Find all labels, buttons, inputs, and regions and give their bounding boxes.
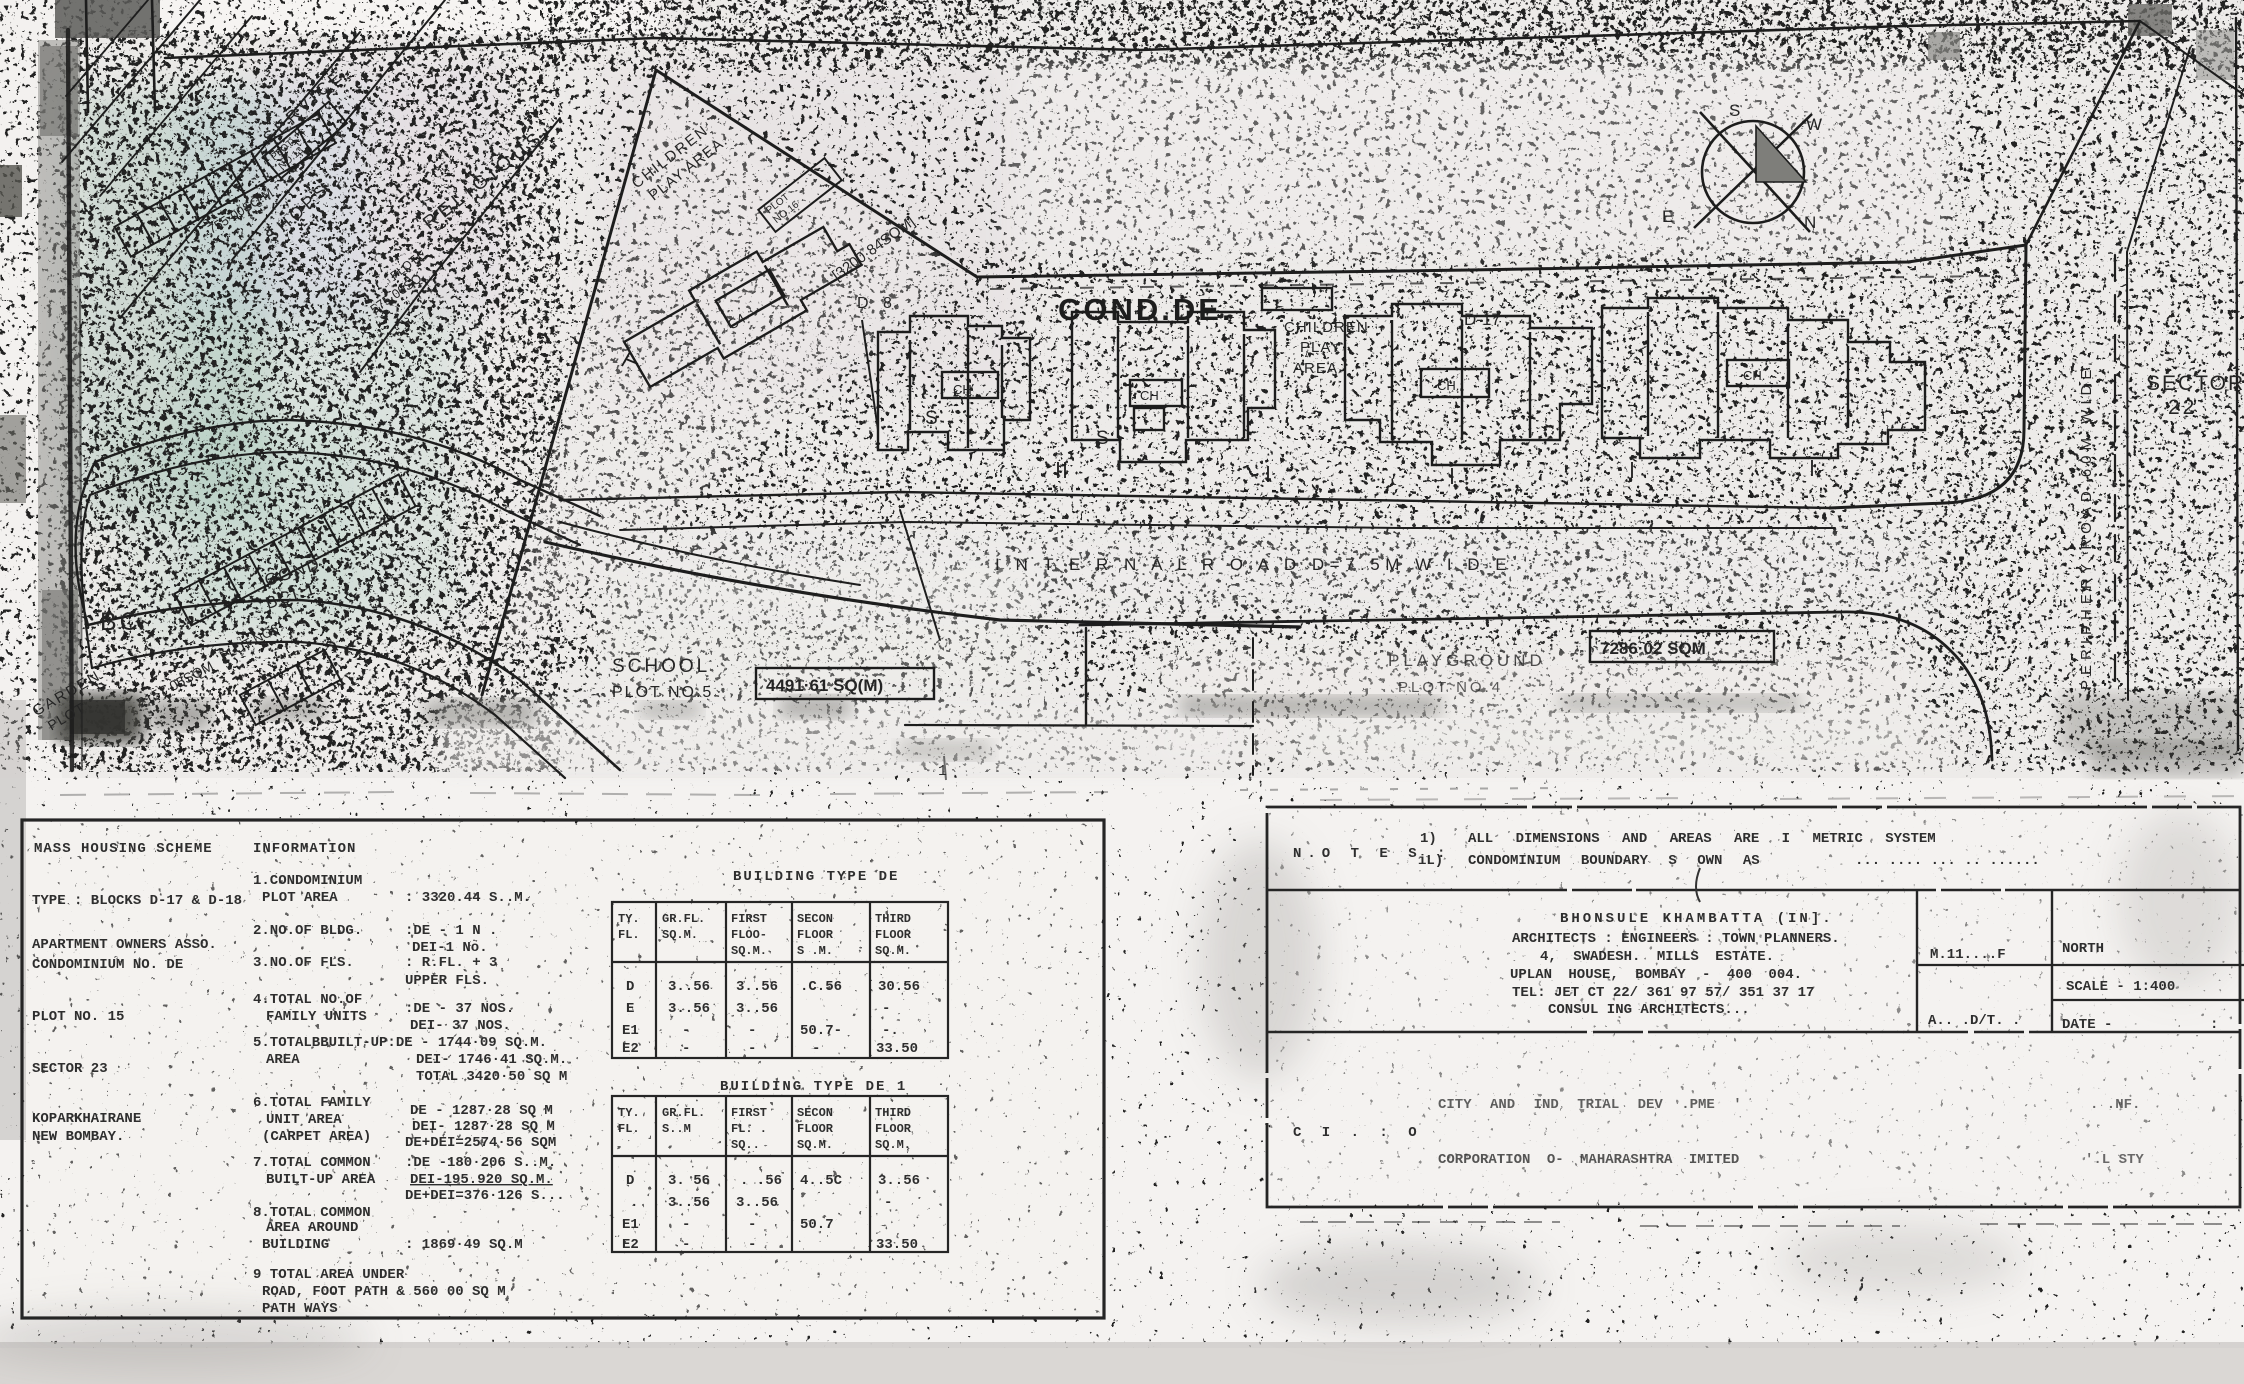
svg-text:NORTH: NORTH <box>2062 941 2104 957</box>
svg-text:PLOT NO.4: PLOT NO.4 <box>1398 679 1503 696</box>
svg-text:BUILDING TYPE DE: BUILDING TYPE DE <box>733 869 899 885</box>
svg-text:SCALE - 1:400: SCALE - 1:400 <box>2066 979 2175 995</box>
svg-text:SECON: SECON <box>797 912 833 926</box>
svg-text:FLOO-: FLOO- <box>731 928 767 942</box>
svg-text:A.. .D/T. .: A.. .D/T. . <box>1928 1013 2020 1029</box>
svg-text:BHONSULE KHAMBATTA (IN].: BHONSULE KHAMBATTA (IN]. <box>1560 911 1834 927</box>
svg-text:8.TOTAL COMMON: 8.TOTAL COMMON <box>253 1205 371 1221</box>
svg-text:-: - <box>682 1237 690 1253</box>
svg-text:30.56: 30.56 <box>878 979 920 995</box>
svg-text:-: - <box>884 1195 892 1211</box>
svg-text:THIRD: THIRD <box>875 912 911 926</box>
svg-text:FLOOR: FLOOR <box>875 928 912 942</box>
svg-text:3..56: 3..56 <box>668 1195 710 1211</box>
svg-text:TOTAL 3420·50 SQ M: TOTAL 3420·50 SQ M <box>416 1069 567 1085</box>
svg-text:PLOT NO. 15: PLOT NO. 15 <box>32 1009 124 1025</box>
svg-text:CONDOMINIUM BOUNDARY S OWN: CONDOMINIUM BOUNDARY S OWN AS <box>1468 853 1760 869</box>
svg-text:ROAD, FOOT PATH & 560 00 SQ M: ROAD, FOOT PATH & 560 00 SQ M <box>262 1284 506 1300</box>
svg-text:50.7: 50.7 <box>800 1217 834 1233</box>
svg-text:DE - 1287·28 SQ M: DE - 1287·28 SQ M <box>410 1103 553 1119</box>
svg-text:SCHOOL: SCHOOL <box>612 656 710 677</box>
svg-text:C I . : O: C I . : O <box>1293 1125 1423 1141</box>
svg-text:TY.: TY. <box>618 1106 640 1120</box>
svg-text:CH: CH <box>1140 388 1159 403</box>
svg-text:AREA: AREA <box>1293 360 1338 377</box>
svg-text:DEI- 1746·41 SQ.M.: DEI- 1746·41 SQ.M. <box>416 1052 567 1068</box>
svg-text:SECON: SECON <box>797 1106 833 1120</box>
svg-text:S: S <box>1096 428 1109 449</box>
svg-text:7286·02 SQM: 7286·02 SQM <box>1600 639 1706 658</box>
svg-text:E2: E2 <box>622 1237 639 1253</box>
svg-text:CITY AND IND TRIAL DEV: CITY AND IND TRIAL DEV .PME ' <box>1438 1097 1742 1113</box>
svg-text:1): 1) <box>1420 831 1437 847</box>
svg-text:DEI- 1287·28 SQ M: DEI- 1287·28 SQ M <box>412 1119 555 1135</box>
svg-text:THIRD: THIRD <box>875 1106 911 1120</box>
svg-text:E1: E1 <box>622 1023 639 1039</box>
svg-text:DEI-195.920 SQ.M.: DEI-195.920 SQ.M. <box>410 1172 553 1188</box>
svg-text:W: W <box>1806 115 1822 134</box>
svg-text::DE - 1 N .: :DE - 1 N . <box>405 923 497 939</box>
svg-text:50.7-: 50.7- <box>800 1023 842 1039</box>
svg-text:ALL DIMENSIONS AND AREAS: ALL DIMENSIONS AND AREAS ARE I METRIC SY… <box>1468 831 1936 847</box>
svg-text:-: - <box>812 1041 820 1057</box>
svg-text:: 1869·49 SQ.M: : 1869·49 SQ.M <box>405 1237 523 1253</box>
svg-text:. .56: . .56 <box>740 1173 782 1189</box>
svg-text:M.11....F: M.11....F <box>1930 947 2006 963</box>
svg-text:3..56: 3..56 <box>878 1173 920 1189</box>
svg-text:-: - <box>748 1217 756 1233</box>
svg-text:3..56: 3..56 <box>736 1001 778 1017</box>
svg-text:4, SWADESH. MILLS ESTATE.: 4, SWADESH. MILLS ESTATE. <box>1540 949 1774 965</box>
svg-text:DATE -: DATE - <box>2062 1017 2112 1033</box>
svg-text:E: E <box>1662 207 1673 226</box>
svg-text:3.NO.OF FLS.: 3.NO.OF FLS. <box>253 955 354 971</box>
svg-text:KOPARKHAIRANE: KOPARKHAIRANE <box>32 1111 141 1127</box>
svg-text:N: N <box>1804 213 1816 232</box>
svg-text:CORPORATION O- MAHARASHTRA: CORPORATION O- MAHARASHTRA IMITED <box>1438 1152 1739 1168</box>
svg-text:GR.FL.: GR.FL. <box>662 1106 705 1120</box>
svg-text:NEW BOMBAY.: NEW BOMBAY. <box>32 1129 124 1145</box>
svg-text:E1: E1 <box>622 1217 639 1233</box>
svg-text:iL): iL) <box>1418 853 1443 869</box>
svg-text:TYPE : BLOCKS D-17 & D-18: TYPE : BLOCKS D-17 & D-18 <box>32 893 242 909</box>
svg-text:FLOOR: FLOOR <box>797 1122 834 1136</box>
svg-text:D 8: D 8 <box>857 295 897 312</box>
svg-text:BC: BC <box>100 608 141 636</box>
svg-text:D: D <box>626 979 634 995</box>
svg-text:. .NF.: . .NF. <box>2090 1097 2140 1113</box>
svg-text:6.TOTAL FAMILY: 6.TOTAL FAMILY <box>253 1095 371 1111</box>
svg-text:SECTOR: SECTOR <box>2146 372 2244 395</box>
svg-text:5.TOTALBBUILT-UP:DE - 1744·09: 5.TOTALBBUILT-UP:DE - 1744·09 SQ.M. <box>253 1035 547 1051</box>
svg-text:22: 22 <box>2168 396 2197 419</box>
svg-text:TEL: JET CT 22/ 361 97 57/ 351: TEL: JET CT 22/ 361 97 57/ 351 37 17 <box>1512 985 1814 1001</box>
svg-text:3..56: 3..56 <box>736 1195 778 1211</box>
svg-text:-: - <box>748 1023 756 1039</box>
svg-text:: 3320.44 S..M.: : 3320.44 S..M. <box>405 890 531 906</box>
svg-text::DE -180·206 S..M.: :DE -180·206 S..M. <box>405 1155 556 1171</box>
svg-text:FLOOR: FLOOR <box>875 1122 912 1136</box>
svg-text:BUILT-UP AREA: BUILT-UP AREA <box>266 1172 376 1188</box>
svg-text::DE - 37 NOS.: :DE - 37 NOS. <box>405 1001 514 1017</box>
svg-text:INFORMATION: INFORMATION <box>253 841 356 857</box>
svg-text:CH: CH <box>953 382 972 397</box>
svg-text:I N T E R N A L R O A D D=: I N T E R N A L R O A D D=7.5M W I D E <box>995 555 1512 574</box>
svg-text:1: 1 <box>938 763 947 780</box>
svg-text:ARCHITECTS : ENGINEERS : TOWN: ARCHITECTS : ENGINEERS : TOWN PLANNERS. <box>1512 931 1840 947</box>
svg-text:PATH WAYS: PATH WAYS <box>262 1301 338 1317</box>
svg-text:FAMILY UNITS: FAMILY UNITS <box>266 1009 367 1025</box>
svg-text:DE+DEI=376·126 S...: DE+DEI=376·126 S... <box>405 1188 565 1204</box>
svg-text:7.TOTAL COMMON: 7.TOTAL COMMON <box>253 1155 371 1171</box>
svg-text:PLAYGROUND: PLAYGROUND <box>1388 651 1546 670</box>
svg-text:E: E <box>626 1001 634 1017</box>
svg-text:-: - <box>748 1237 756 1253</box>
svg-text:SQ.M.: SQ.M. <box>875 944 911 958</box>
svg-text:CONSUL ING ARCHITECTS...: CONSUL ING ARCHITECTS... <box>1548 1002 1750 1018</box>
svg-text:3..56: 3..56 <box>668 979 710 995</box>
svg-text:.: . <box>630 1195 638 1211</box>
svg-text:4491·61 SQ(M): 4491·61 SQ(M) <box>766 676 883 695</box>
svg-text:33.50: 33.50 <box>876 1237 918 1253</box>
svg-text:-: - <box>682 1217 690 1233</box>
svg-text:.C.56: .C.56 <box>800 979 842 995</box>
svg-text:1.CONDOMINIUM: 1.CONDOMINIUM <box>253 873 362 889</box>
svg-text:UPPER FLS.: UPPER FLS. <box>405 973 489 989</box>
svg-text:FIRST: FIRST <box>731 912 767 926</box>
svg-text:COND.DE.: COND.DE. <box>1058 292 1234 327</box>
svg-text:33.50: 33.50 <box>876 1041 918 1057</box>
svg-text:UNIT AREA: UNIT AREA <box>266 1112 342 1128</box>
svg-text:... .... ... .. ......: ... .... ... .. ...... <box>1855 853 2040 869</box>
svg-text:SECTOR 23: SECTOR 23 <box>32 1061 108 1077</box>
svg-text::: : <box>2210 1017 2218 1033</box>
svg-text:D-17: D-17 <box>1464 310 1501 329</box>
svg-text:-.: -. <box>882 1023 899 1039</box>
svg-text:SQ.M.: SQ.M. <box>662 928 698 942</box>
svg-text:DEI- 37 NOS.: DEI- 37 NOS. <box>410 1018 511 1034</box>
svg-text:AREA AROUND: AREA AROUND <box>266 1220 358 1236</box>
svg-text:S: S <box>1729 101 1740 120</box>
svg-text:TY.: TY. <box>618 912 640 926</box>
svg-text:PERIPHERY ROAD 60M WIDE: PERIPHERY ROAD 60M WIDE <box>2078 365 2095 690</box>
svg-text:2.NO.OF BLDG.: 2.NO.OF BLDG. <box>253 923 362 939</box>
svg-text:3..56: 3..56 <box>736 979 778 995</box>
svg-text:FL. .: FL. . <box>731 1122 767 1136</box>
svg-text:DEI-1 No.: DEI-1 No. <box>412 940 488 956</box>
svg-text:'.L STY: '.L STY <box>2085 1152 2144 1168</box>
svg-text:E2: E2 <box>622 1041 639 1057</box>
svg-text:SQ..: SQ.. <box>731 1138 760 1152</box>
svg-text:BUILDING TYPE DE 1: BUILDING TYPE DE 1 <box>720 1079 907 1095</box>
svg-text:4..5C: 4..5C <box>800 1173 843 1189</box>
svg-text:FLOOR: FLOOR <box>797 928 834 942</box>
svg-text:9 TOTAL AREA UNDER: 9 TOTAL AREA UNDER <box>253 1267 405 1283</box>
svg-text:APARTMENT OWNERS ASSO.: APARTMENT OWNERS ASSO. <box>32 937 217 953</box>
svg-text:CHILDREN: CHILDREN <box>1284 319 1369 336</box>
svg-text:FL.: FL. <box>618 928 640 942</box>
svg-text:FIRST: FIRST <box>731 1106 767 1120</box>
svg-text:S..M: S..M <box>662 1122 691 1136</box>
svg-text:CONDOMINIUM NO. DE: CONDOMINIUM NO. DE <box>32 957 183 973</box>
svg-text:(CARPET AREA): (CARPET AREA) <box>262 1129 371 1145</box>
svg-text:PLOT NO.5: PLOT NO.5 <box>612 684 713 701</box>
svg-text:SQ.M.: SQ.M. <box>731 944 767 958</box>
svg-text:PLAY: PLAY <box>1300 339 1341 356</box>
svg-text:AREA: AREA <box>266 1052 300 1068</box>
svg-text:DE+DEI=2574·56 SQM: DE+DEI=2574·56 SQM <box>405 1135 556 1151</box>
svg-text:PLOT AREA: PLOT AREA <box>262 890 338 906</box>
svg-text:4.TOTAL NO.OF: 4.TOTAL NO.OF <box>253 992 362 1008</box>
svg-text:D: D <box>626 1173 634 1189</box>
svg-text:: R.FL. + 3: : R.FL. + 3 <box>405 955 497 971</box>
svg-text:-: - <box>682 1041 690 1057</box>
svg-text:FL.: FL. <box>618 1122 640 1136</box>
svg-text:BUILDING: BUILDING <box>262 1237 329 1253</box>
svg-text:S .M.: S .M. <box>797 944 833 958</box>
svg-text:CH.: CH. <box>1437 378 1459 393</box>
svg-text:-: - <box>882 1001 890 1017</box>
svg-text:-: - <box>748 1041 756 1057</box>
svg-text:CH.: CH. <box>1743 368 1765 383</box>
svg-text:SQ.M.: SQ.M. <box>797 1138 833 1152</box>
svg-text:SQ.M.: SQ.M. <box>875 1138 911 1152</box>
svg-text:UPLAN HOUSE, BOMBAY - 400: UPLAN HOUSE, BOMBAY - 400 004. <box>1510 967 1802 983</box>
svg-text:3. 56: 3. 56 <box>668 1173 710 1189</box>
svg-text:MASS HOUSING SCHEME: MASS HOUSING SCHEME <box>34 841 213 857</box>
svg-text:S: S <box>925 408 938 429</box>
svg-text:3..56: 3..56 <box>668 1001 710 1017</box>
svg-text:GR.FL.: GR.FL. <box>662 912 705 926</box>
svg-text:-: - <box>682 1023 690 1039</box>
